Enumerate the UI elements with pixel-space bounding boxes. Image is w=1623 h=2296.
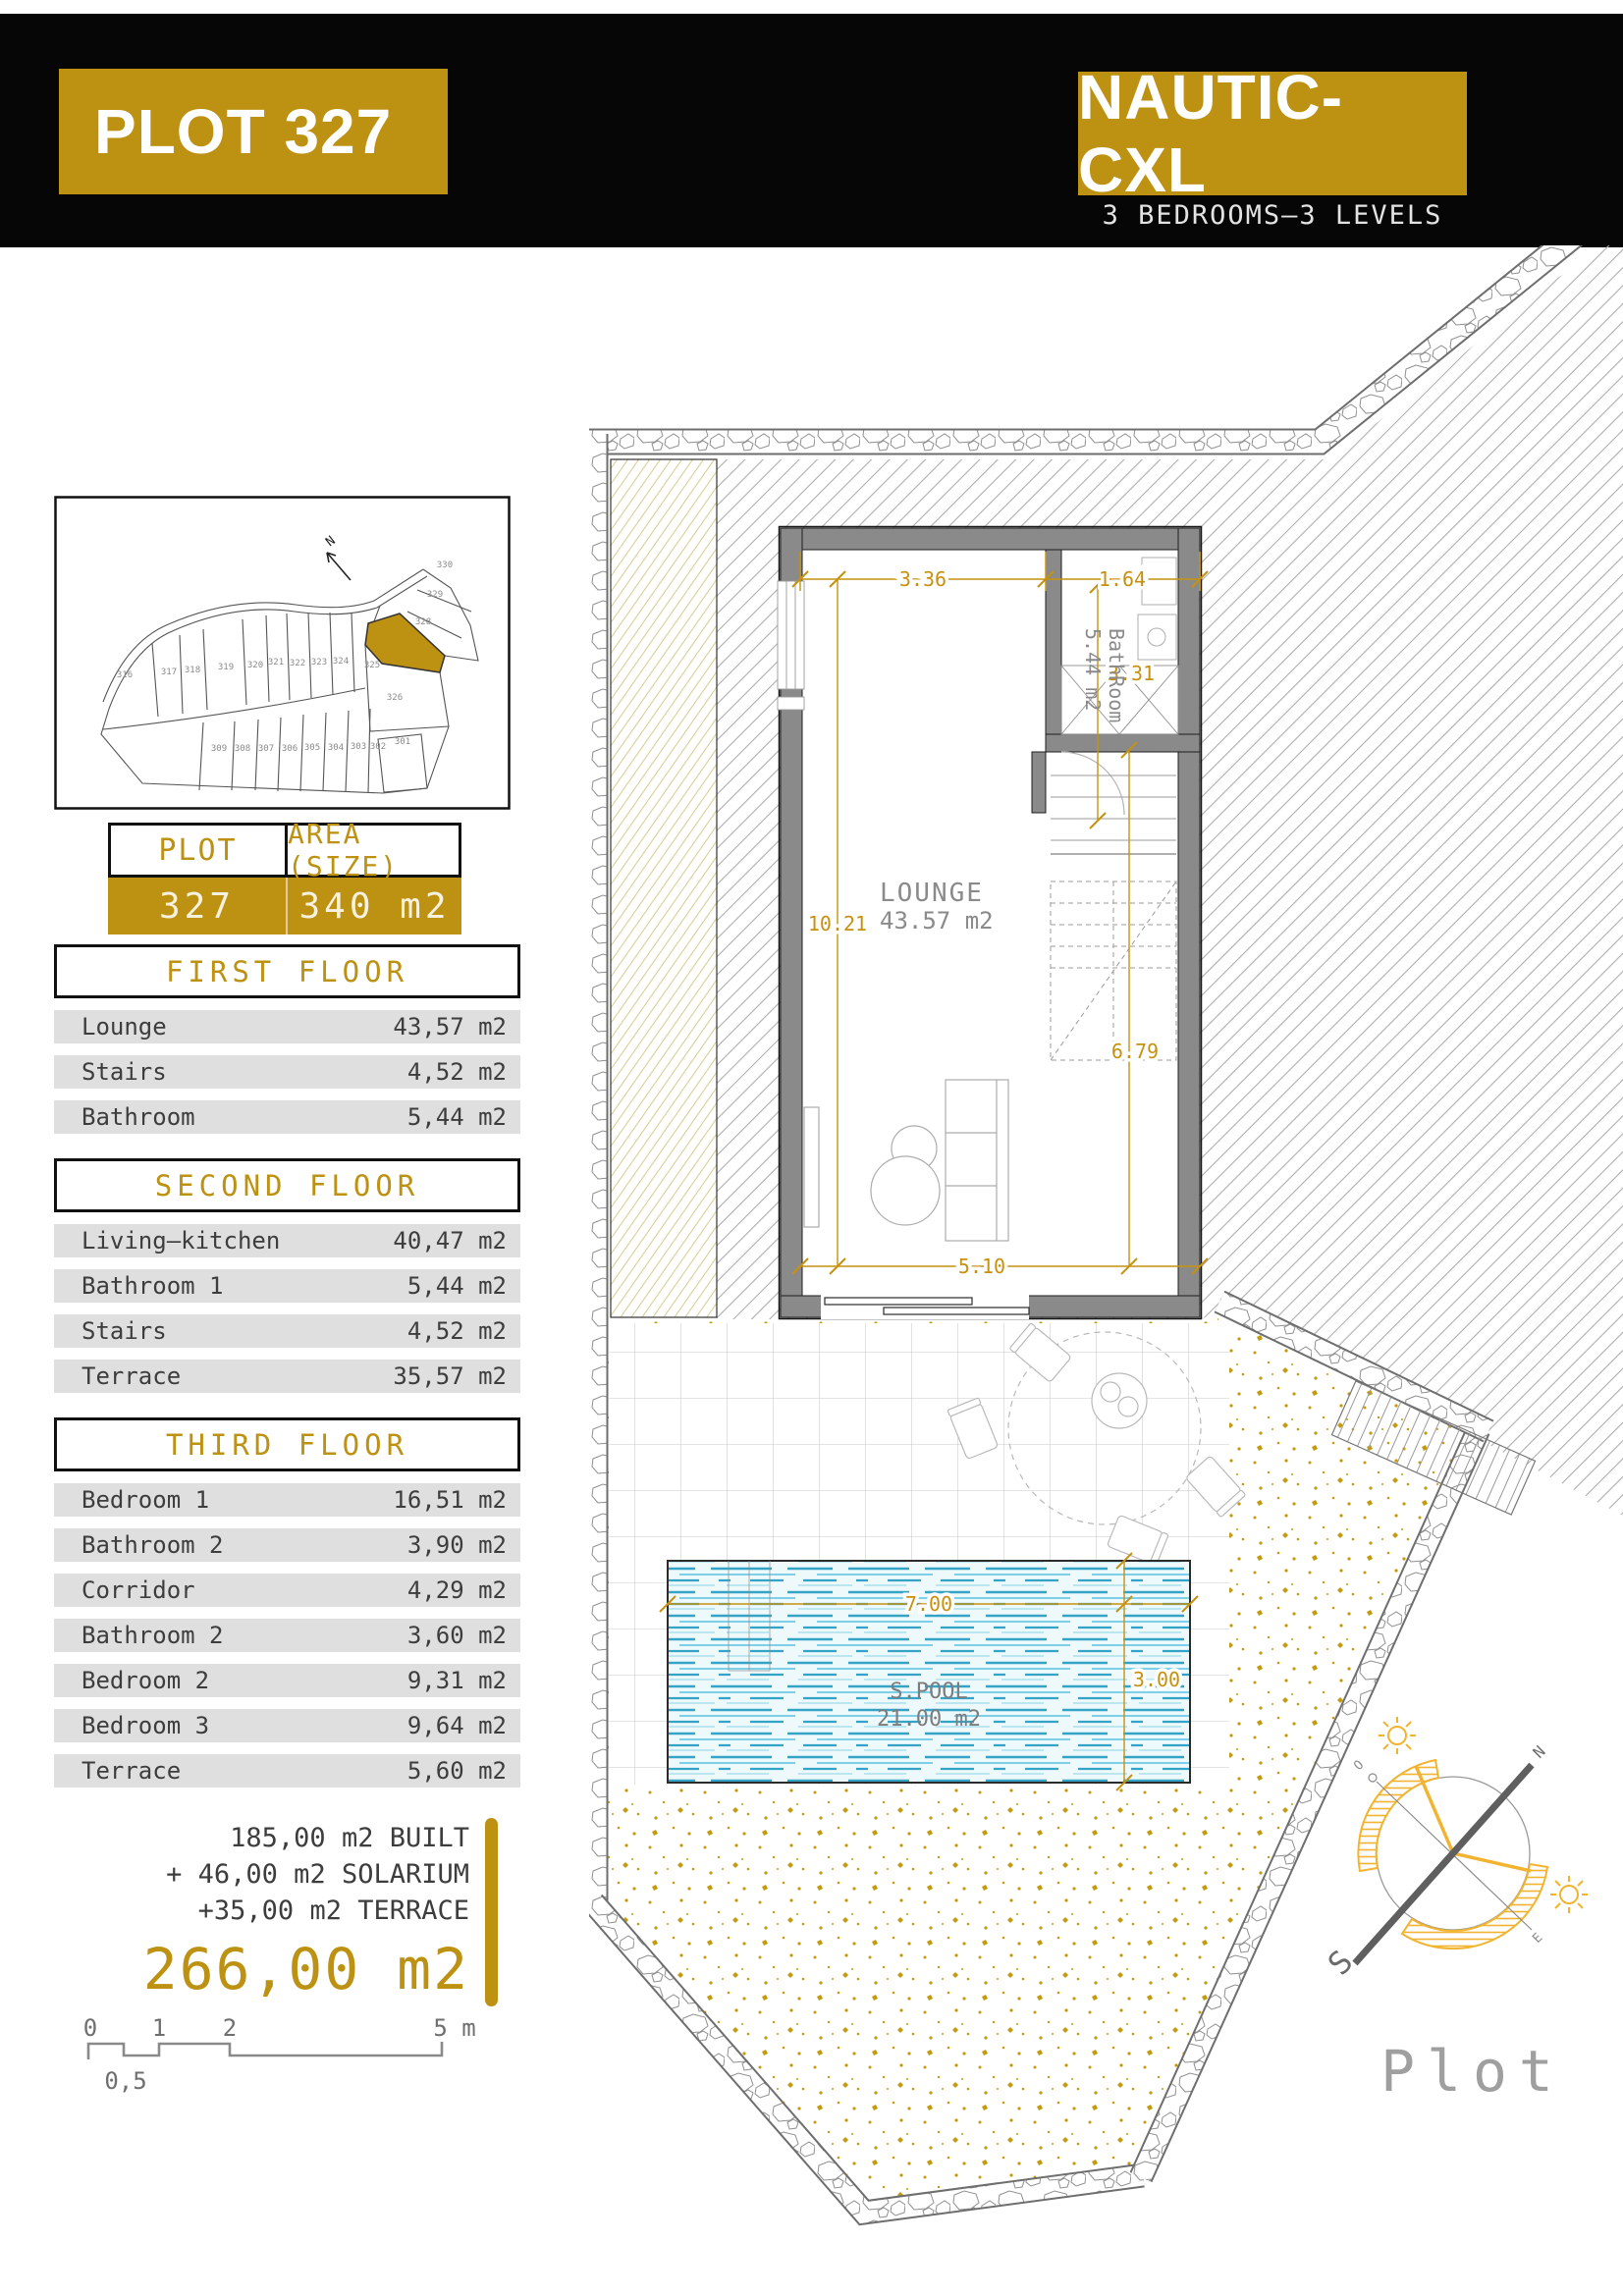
- room-label: Bathroom: [81, 1103, 195, 1131]
- svg-text:324: 324: [333, 657, 349, 667]
- table-row: Bedroom 39,64 m2: [54, 1709, 520, 1742]
- dim-pool-width: 7.00: [905, 1592, 952, 1616]
- room-area-value: 9,64 m2: [407, 1712, 507, 1739]
- svg-text:302: 302: [370, 742, 386, 752]
- room-area-value: 5,44 m2: [407, 1103, 507, 1131]
- summary-line: 185,00 m2 BUILT: [39, 1820, 469, 1856]
- plot-area-table: PLOT AREA (SIZE) 327 340 m2: [108, 823, 461, 934]
- dim-lounge-height: 10.21: [808, 912, 867, 935]
- floor-title: FIRST FLOOR: [54, 944, 520, 998]
- plot-title: PLOT 327: [94, 95, 392, 168]
- compass-s: S: [1321, 1943, 1360, 1982]
- compass-n: N: [1529, 1742, 1548, 1762]
- svg-text:328: 328: [415, 617, 431, 627]
- svg-text:320: 320: [247, 661, 263, 670]
- room-area-value: 4,52 m2: [407, 1317, 507, 1345]
- scale-tick-label: 1: [152, 2018, 166, 2042]
- summary-line: + 46,00 m2 SOLARIUM: [39, 1856, 469, 1893]
- room-label: Bathroom 1: [81, 1272, 224, 1300]
- floor-title: THIRD FLOOR: [54, 1417, 520, 1471]
- scale-tick-label: 0: [83, 2018, 97, 2042]
- table-row: Living—kitchen40,47 m2: [54, 1224, 520, 1257]
- svg-text:321: 321: [268, 658, 284, 667]
- first-floor-section: FIRST FLOOR Lounge43,57 m2Stairs4,52 m2B…: [54, 944, 520, 1134]
- third-floor-section: THIRD FLOOR Bedroom 116,51 m2Bathroom 23…: [54, 1417, 520, 1788]
- armchair: [871, 1156, 940, 1225]
- svg-text:318: 318: [185, 666, 200, 675]
- dim-bottom: 5.10: [958, 1255, 1005, 1278]
- dim-top-right: 1.64: [1099, 567, 1146, 591]
- table-row: Bedroom 116,51 m2: [54, 1483, 520, 1517]
- floor-plan: 3.36 1.64 3.31 10.21 6.79 5.10 7.00 3.00…: [589, 245, 1623, 2296]
- lounge-label: LOUNGE: [880, 879, 984, 908]
- table-row: Terrace35,57 m2: [54, 1360, 520, 1393]
- floor-tables: FIRST FLOOR Lounge43,57 m2Stairs4,52 m2B…: [54, 944, 520, 1788]
- room-area-value: 9,31 m2: [407, 1667, 507, 1694]
- room-label: Bedroom 3: [81, 1712, 209, 1739]
- room-area-value: 35,57 m2: [393, 1362, 507, 1390]
- svg-text:329: 329: [427, 590, 443, 600]
- floorplan-sheet: { "header": { "plot_box": "PLOT 327", "m…: [0, 0, 1623, 2296]
- room-label: Corridor: [81, 1576, 195, 1604]
- room-area-value: 4,52 m2: [407, 1058, 507, 1086]
- svg-text:303: 303: [351, 742, 366, 752]
- area-column-header: AREA (SIZE): [288, 826, 459, 875]
- table-row: Lounge43,57 m2: [54, 1010, 520, 1043]
- dim-pool-height: 3.00: [1133, 1668, 1180, 1691]
- room-label: Stairs: [81, 1317, 167, 1345]
- svg-text:322: 322: [290, 659, 305, 668]
- table-row: Bathroom5,44 m2: [54, 1100, 520, 1134]
- compass-o: O: [1351, 1758, 1367, 1774]
- compass-rose: N S O E: [1321, 1717, 1588, 1983]
- bathroom-area-label: 5.44 m2: [1081, 628, 1105, 711]
- driveway-strip: [611, 459, 717, 1317]
- scale-bar-line: [88, 2042, 442, 2059]
- plot-column-header: PLOT: [111, 826, 288, 875]
- room-label: Bathroom 2: [81, 1622, 224, 1649]
- room-label: Terrace: [81, 1757, 181, 1785]
- room-label: Lounge: [81, 1013, 167, 1041]
- room-label: Bedroom 1: [81, 1486, 209, 1514]
- svg-text:305: 305: [304, 743, 320, 753]
- summary-total: 266,00 m2: [39, 1939, 469, 2000]
- room-label: Bathroom 2: [81, 1531, 224, 1559]
- model-subtitle: 3 BEDROOMS—3 LEVELS: [1078, 200, 1467, 231]
- area-summary: 185,00 m2 BUILT + 46,00 m2 SOLARIUM +35,…: [39, 1820, 469, 2000]
- plot-title-box: PLOT 327: [59, 69, 448, 194]
- bathroom-label: BathRoom: [1105, 628, 1128, 722]
- svg-text:308: 308: [235, 744, 250, 754]
- table-row: Corridor4,29 m2: [54, 1574, 520, 1607]
- svg-text:330: 330: [437, 561, 453, 570]
- dim-stairs: 6.79: [1111, 1040, 1159, 1063]
- scale-bar: 0 1 2 5 m 0,5: [77, 2018, 499, 2102]
- summary-line: +35,00 m2 TERRACE: [39, 1893, 469, 1929]
- svg-text:309: 309: [211, 744, 227, 754]
- model-title-box: NAUTIC-CXL: [1078, 72, 1467, 195]
- room-area-value: 5,44 m2: [407, 1272, 507, 1300]
- room-label: Living—kitchen: [81, 1227, 280, 1255]
- gold-accent-bar: [485, 1818, 498, 2006]
- room-area-value: 3,90 m2: [407, 1531, 507, 1559]
- floor-title: SECOND FLOOR: [54, 1158, 520, 1212]
- room-label: Stairs: [81, 1058, 167, 1086]
- table-row: Bathroom 15,44 m2: [54, 1269, 520, 1303]
- svg-text:325: 325: [364, 661, 380, 670]
- table-row: Terrace5,60 m2: [54, 1754, 520, 1788]
- sliding-door: [821, 1294, 1029, 1319]
- scale-half-label: 0,5: [104, 2067, 146, 2095]
- plot-number-value: 327: [108, 878, 288, 934]
- room-label: Bedroom 2: [81, 1667, 209, 1694]
- room-area-value: 5,60 m2: [407, 1757, 507, 1785]
- table-row: Stairs4,52 m2: [54, 1055, 520, 1089]
- scale-tick-label: 5 m: [433, 2018, 475, 2042]
- svg-text:316: 316: [117, 670, 133, 680]
- svg-text:323: 323: [311, 658, 327, 667]
- compass-e: E: [1530, 1931, 1545, 1947]
- site-map: N 316 317 318 319 320 321 322 323 324 32…: [54, 496, 511, 810]
- plot-watermark: Plot: [1380, 2038, 1565, 2105]
- svg-text:304: 304: [328, 743, 344, 753]
- svg-text:307: 307: [258, 744, 274, 754]
- table-row: Bedroom 29,31 m2: [54, 1664, 520, 1697]
- room-area-value: 3,60 m2: [407, 1622, 507, 1649]
- table-row: Stairs4,52 m2: [54, 1314, 520, 1348]
- room-area-value: 16,51 m2: [393, 1486, 507, 1514]
- room-area-value: 43,57 m2: [393, 1013, 507, 1041]
- pool-label: S.POOL: [890, 1680, 967, 1704]
- svg-text:301: 301: [395, 737, 410, 747]
- table-row: Bathroom 23,60 m2: [54, 1619, 520, 1652]
- room-area-value: 4,29 m2: [407, 1576, 507, 1604]
- room-area-value: 40,47 m2: [393, 1227, 507, 1255]
- svg-text:319: 319: [218, 663, 234, 672]
- table-row: Bathroom 23,90 m2: [54, 1528, 520, 1562]
- svg-text:317: 317: [161, 667, 177, 677]
- pool-area-label: 21.00 m2: [877, 1707, 981, 1732]
- terrace-table: [1092, 1373, 1147, 1428]
- plot-area-value: 340 m2: [288, 878, 461, 934]
- model-title: NAUTIC-CXL: [1078, 61, 1467, 206]
- room-label: Terrace: [81, 1362, 181, 1390]
- sofa: [946, 1080, 1008, 1241]
- second-floor-section: SECOND FLOOR Living—kitchen40,47 m2Bathr…: [54, 1158, 520, 1393]
- scale-tick-label: 2: [223, 2018, 237, 2042]
- svg-text:326: 326: [387, 693, 403, 703]
- lounge-area-label: 43.57 m2: [880, 907, 994, 934]
- dim-top-left: 3.36: [899, 567, 947, 591]
- svg-text:306: 306: [282, 744, 298, 754]
- compass-gold-crescent: [1358, 1760, 1438, 1871]
- tv-unit: [804, 1107, 819, 1227]
